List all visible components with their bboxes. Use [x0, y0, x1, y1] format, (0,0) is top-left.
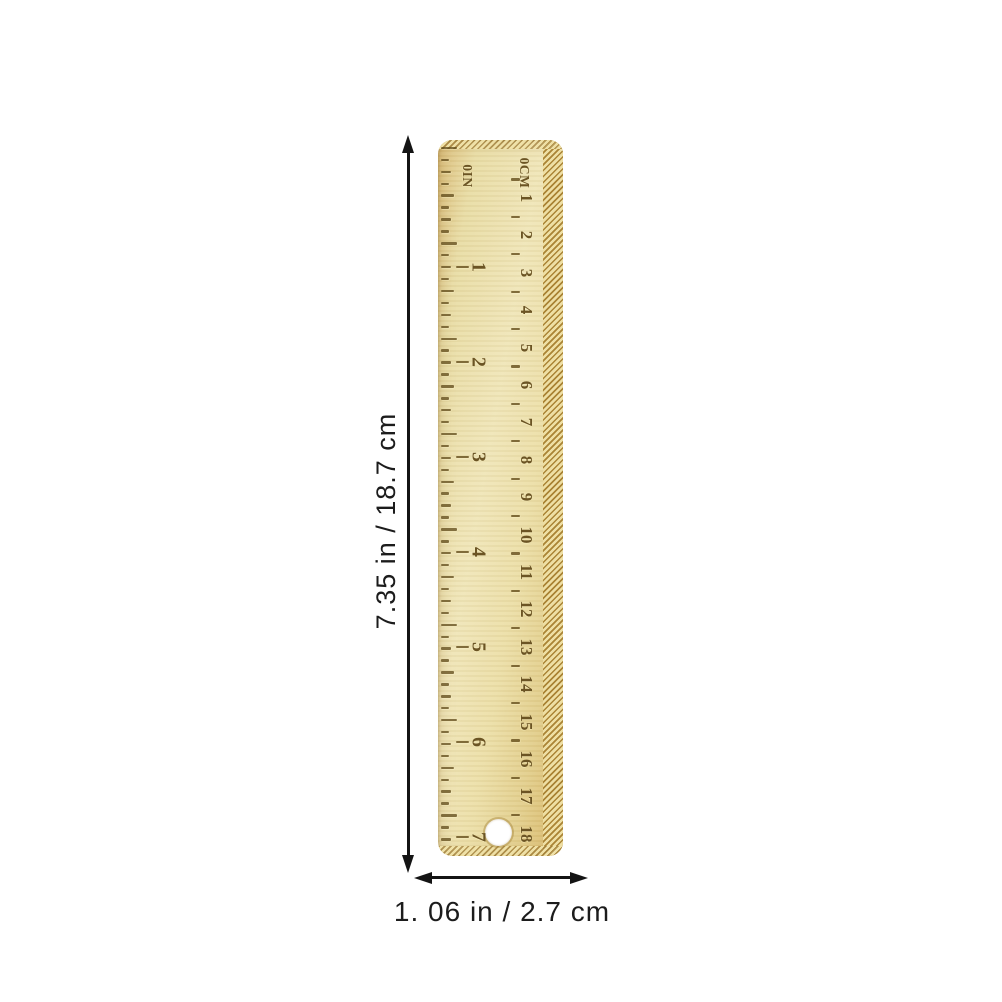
inch-edge-tick	[441, 445, 449, 447]
cm-number: 1	[516, 194, 536, 203]
half-cm-mark	[511, 814, 520, 816]
inch-edge-tick	[441, 409, 451, 411]
cm-number: 2	[516, 231, 536, 240]
arrow-right-icon	[570, 872, 588, 884]
cm-number: 5	[516, 343, 536, 352]
inch-number: 6	[467, 737, 490, 747]
cm-number: 10	[516, 526, 536, 543]
inch-edge-tick	[441, 528, 457, 530]
half-cm-mark	[511, 739, 520, 741]
inch-edge-tick	[441, 647, 451, 649]
inch-edge-tick	[441, 790, 451, 792]
inch-edge-tick	[441, 492, 449, 494]
inch-edge-tick	[441, 302, 449, 304]
inch-edge-tick	[441, 481, 454, 483]
inch-edge-tick	[441, 349, 449, 351]
inch-edge-tick	[441, 373, 449, 375]
inch-edge-tick	[441, 814, 457, 816]
inch-edge-tick	[441, 576, 454, 578]
inch-number: 4	[467, 547, 490, 557]
inch-edge-tick	[441, 802, 449, 804]
inch-edge-tick	[441, 826, 449, 828]
half-cm-mark	[511, 627, 520, 629]
width-dimension-label: 1. 06 in / 2.7 cm	[352, 894, 652, 930]
inch-edge-tick	[441, 457, 451, 459]
inch-edge-tick	[441, 433, 457, 435]
inch-edge-tick	[441, 266, 451, 268]
half-cm-mark	[511, 403, 520, 405]
half-cm-mark	[511, 291, 520, 293]
width-dimension-line	[427, 876, 575, 879]
inch-edge-tick	[441, 326, 449, 328]
inch-scale-zero-label: 0IN	[459, 164, 475, 187]
inch-edge-tick	[441, 361, 451, 363]
half-cm-mark	[511, 253, 520, 255]
cm-number: 9	[516, 493, 536, 502]
half-cm-mark	[511, 777, 520, 779]
cm-number: 4	[516, 306, 536, 315]
cm-number: 12	[516, 601, 536, 618]
inch-number: 1	[467, 262, 490, 272]
inch-edge-tick	[441, 659, 449, 661]
cm-number: 3	[516, 269, 536, 278]
inch-edge-tick	[441, 421, 449, 423]
half-cm-mark	[511, 216, 520, 218]
half-cm-mark	[511, 328, 520, 330]
inch-edge-tick	[441, 588, 449, 590]
inch-edge-tick	[441, 385, 454, 387]
knurled-edge-bottom	[438, 846, 563, 856]
inch-number: 3	[467, 452, 490, 462]
inch-edge-tick	[441, 171, 451, 173]
arrow-up-icon	[402, 135, 414, 153]
inch-edge-tick	[441, 624, 457, 626]
inch-edge-tick	[441, 719, 457, 721]
inch-edge-tick	[441, 731, 449, 733]
inch-edge-tick	[441, 242, 457, 244]
inch-edge-tick	[441, 695, 451, 697]
inch-edge-tick	[441, 314, 451, 316]
brass-ruler: 0IN 0CM 12345671234567891011121314151617…	[438, 140, 563, 856]
inch-edge-tick	[441, 767, 454, 769]
half-cm-mark	[511, 665, 520, 667]
inch-edge-tick	[441, 147, 457, 149]
inch-number: 2	[467, 357, 490, 367]
inch-edge-tick	[441, 683, 449, 685]
inch-edge-tick	[441, 600, 451, 602]
cm-number: 15	[516, 713, 536, 730]
inch-edge-tick	[441, 230, 449, 232]
inch-edge-tick	[441, 612, 449, 614]
half-cm-mark	[511, 478, 520, 480]
cm-number: 8	[516, 456, 536, 465]
arrow-down-icon	[402, 855, 414, 873]
cm-number: 6	[516, 381, 536, 390]
cm-number: 14	[516, 676, 536, 693]
inch-edge-tick	[441, 338, 457, 340]
inch-edge-tick	[441, 206, 449, 208]
cm-number: 7	[516, 418, 536, 427]
inch-edge-tick	[441, 755, 449, 757]
half-cm-mark	[511, 515, 520, 517]
half-cm-mark	[511, 552, 520, 554]
inch-edge-tick	[441, 552, 451, 554]
half-cm-mark	[511, 440, 520, 442]
half-cm-mark	[511, 590, 520, 592]
inch-edge-tick	[441, 218, 451, 220]
inch-edge-tick	[441, 636, 449, 638]
knurled-edge-right	[543, 140, 563, 856]
inch-edge-tick	[441, 504, 451, 506]
cm-scale-zero-label: 0CM	[516, 158, 532, 189]
inch-edge-tick	[441, 838, 451, 840]
inch-number: 5	[467, 642, 490, 652]
inch-edge-tick	[441, 779, 449, 781]
inch-number: 7	[467, 832, 490, 842]
height-dimension-label: 7.35 in / 18.7 cm	[369, 381, 403, 661]
product-image: 7.35 in / 18.7 cm 1. 06 in / 2.7 cm 0IN …	[0, 0, 1002, 1002]
half-cm-mark	[511, 365, 520, 367]
inch-edge-tick	[441, 743, 451, 745]
inch-edge-tick	[441, 397, 449, 399]
inch-edge-tick	[441, 516, 449, 518]
inch-edge-tick	[441, 278, 449, 280]
cm-number: 13	[516, 638, 536, 655]
inch-edge-tick	[441, 564, 449, 566]
height-dimension-line	[407, 150, 410, 858]
inch-edge-tick	[441, 159, 449, 161]
half-cm-mark	[511, 178, 520, 180]
inch-edge-tick	[441, 707, 449, 709]
inch-edge-tick	[441, 194, 454, 196]
inch-edge-tick	[441, 183, 449, 185]
half-cm-mark	[511, 702, 520, 704]
inch-edge-tick	[441, 540, 449, 542]
cm-number: 18	[516, 825, 536, 842]
cm-number: 11	[516, 564, 536, 580]
inch-edge-tick	[441, 469, 449, 471]
inch-edge-tick	[441, 671, 454, 673]
inch-edge-tick	[441, 254, 449, 256]
cm-number: 17	[516, 788, 536, 805]
inch-edge-tick	[441, 290, 454, 292]
arrow-left-icon	[414, 872, 432, 884]
cm-number: 16	[516, 751, 536, 768]
